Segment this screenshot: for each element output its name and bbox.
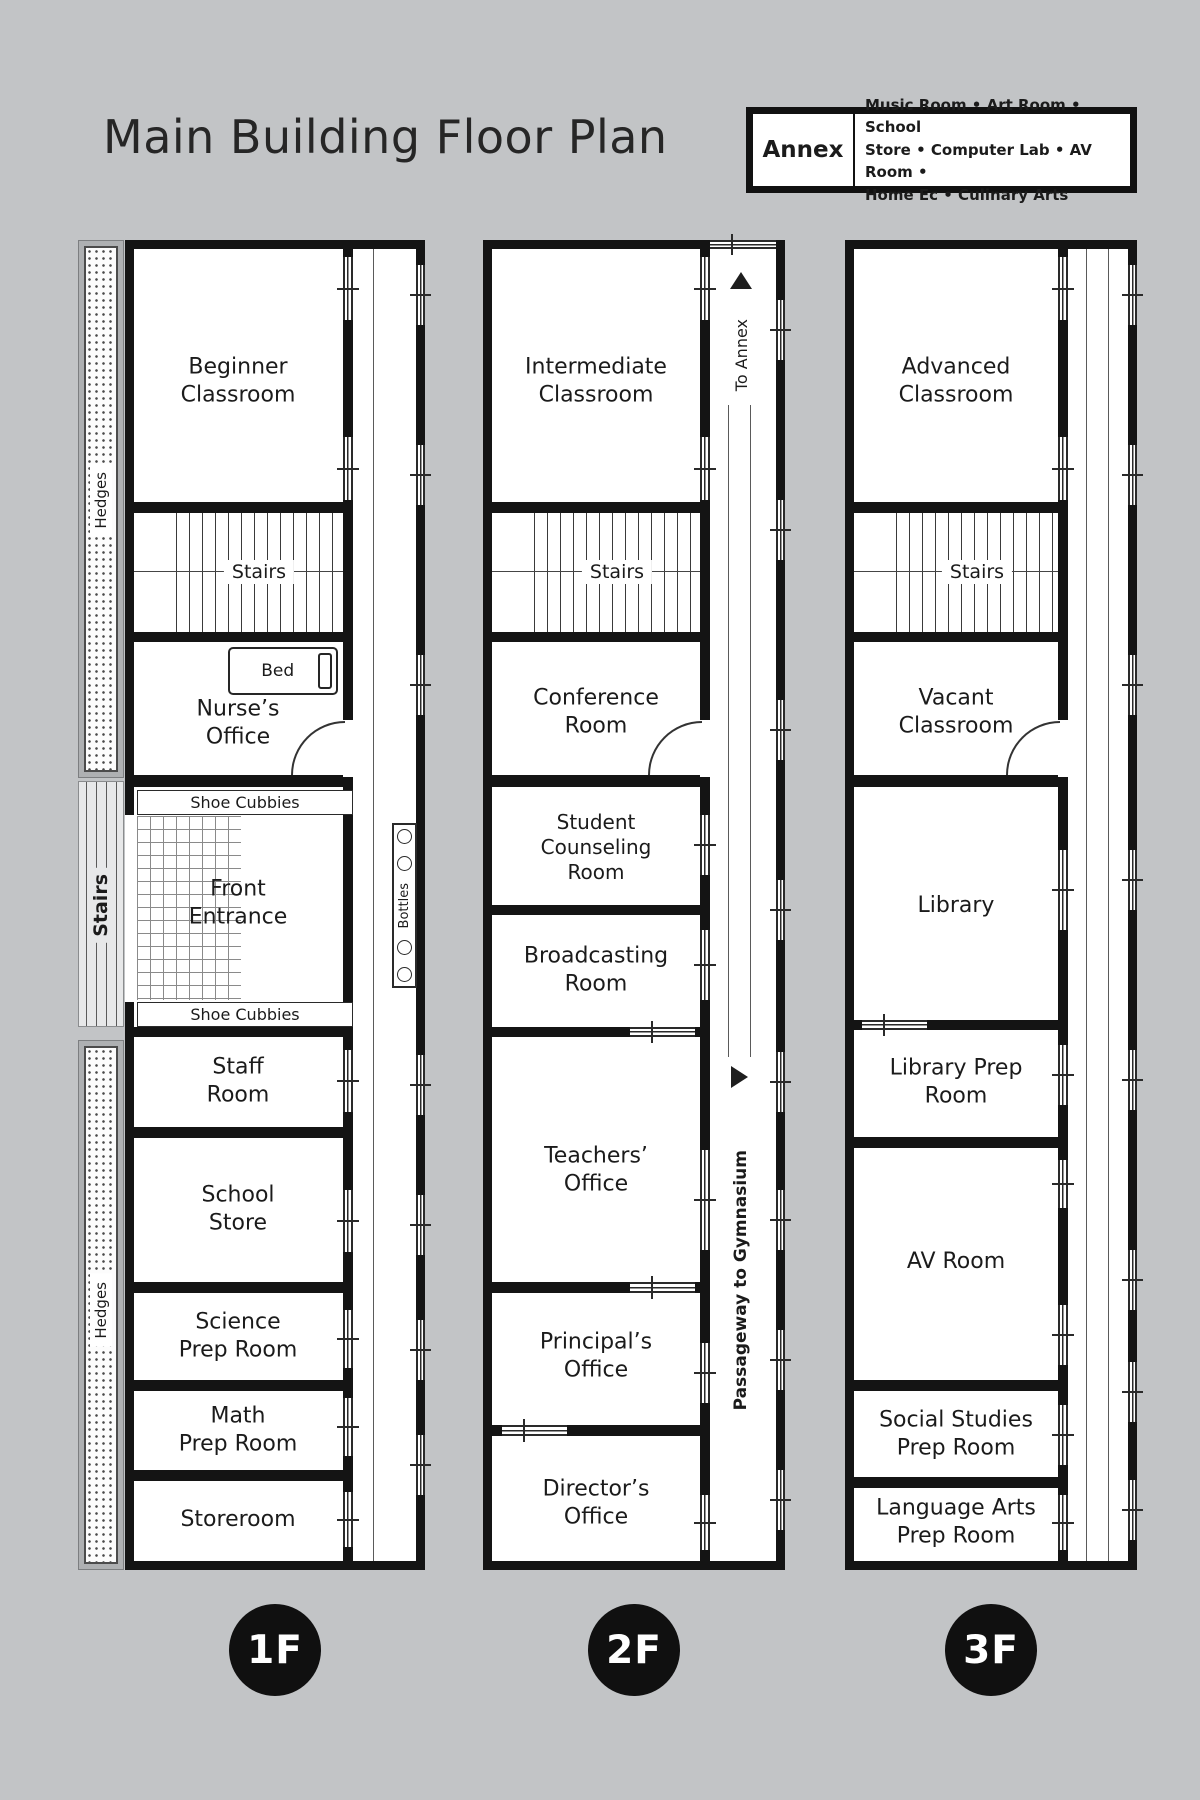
window-marker: [700, 257, 710, 320]
wall: [134, 1027, 343, 1037]
window-marker: [416, 1435, 425, 1495]
wall: [134, 1470, 343, 1481]
room-label-intermediate-classroom: Intermediate Classroom: [525, 353, 667, 408]
wall: [134, 1282, 343, 1293]
wall: [134, 1127, 343, 1138]
corridor-line: [1086, 249, 1087, 1561]
window-marker: [343, 1310, 353, 1368]
room-label-library-prep: Library Prep Room: [890, 1054, 1023, 1109]
bottle-icon: [397, 829, 412, 844]
room-label-vacant-classroom: Vacant Classroom: [899, 684, 1014, 739]
window-marker: [776, 300, 785, 360]
window-marker: [343, 1190, 353, 1252]
wall: [854, 1380, 1058, 1391]
window-marker: [776, 1190, 785, 1250]
floor-badge-2f: 2F: [588, 1604, 680, 1696]
room-label-library: Library: [918, 892, 995, 920]
room-label-school-store: School Store: [201, 1181, 274, 1236]
wall: [854, 775, 1058, 787]
corridor-line: [373, 249, 374, 1561]
hedges-label: Hedges: [78, 1265, 124, 1355]
passage-opening: [710, 240, 776, 249]
wall: [483, 1561, 785, 1570]
room-label-front-entrance: Front Entrance: [189, 875, 288, 930]
window-marker: [416, 1195, 425, 1255]
window-marker: [343, 1398, 353, 1456]
window-marker: [1058, 1305, 1068, 1365]
room-label-teachers-office: Teachers’ Office: [544, 1142, 648, 1197]
shoe-cubbies: Shoe Cubbies: [137, 790, 353, 815]
window-marker: [1128, 1362, 1137, 1422]
annex-legend-line: Store • Computer Lab • AV Room •: [865, 139, 1126, 184]
window-marker: [1058, 1405, 1068, 1465]
door-marker: [776, 1052, 785, 1112]
window-marker: [776, 500, 785, 560]
window-marker: [776, 1470, 785, 1530]
bottle-icon: [397, 856, 412, 871]
window-marker: [416, 655, 425, 715]
window-marker: [700, 437, 710, 500]
to-annex-label: To Annex: [722, 300, 760, 410]
room-label-student-counseling: Student Counseling Room: [541, 810, 652, 886]
window-marker: [700, 1150, 710, 1250]
room-label-principals-office: Principal’s Office: [540, 1328, 652, 1383]
window-marker: [416, 265, 425, 325]
room-label-directors-office: Director’s Office: [543, 1475, 650, 1530]
exterior-stairs-label: Stairs: [78, 865, 124, 945]
window-marker: [416, 1055, 425, 1115]
window-marker: [700, 815, 710, 875]
window-marker: [1128, 1050, 1137, 1110]
shoe-cubbies: Shoe Cubbies: [137, 1002, 353, 1027]
door-marker: [502, 1425, 567, 1436]
window-marker: [1128, 1250, 1137, 1310]
hedges-label: Hedges: [78, 455, 124, 545]
door-marker: [630, 1027, 695, 1037]
window-marker: [700, 930, 710, 1000]
bottles-rack: Bottles: [392, 823, 417, 988]
wall: [483, 240, 710, 249]
window-marker: [343, 437, 353, 500]
room-label-social-studies-prep: Social Studies Prep Room: [879, 1406, 1033, 1461]
annex-legend-line: Home Ec • Culinary Arts: [865, 184, 1126, 207]
annex-legend-list: Music Room • Art Room • School Store • C…: [855, 114, 1130, 186]
floor-plan-canvas: Main Building Floor Plan Annex Music Roo…: [0, 0, 1200, 1800]
corridor-line: [728, 405, 729, 1057]
bed: Bed: [228, 647, 338, 695]
wall: [483, 240, 492, 1570]
room-label-advanced-classroom: Advanced Classroom: [899, 353, 1014, 408]
wall: [845, 1561, 1137, 1570]
window-marker: [1058, 257, 1068, 320]
room-label-language-arts-prep: Language Arts Prep Room: [876, 1494, 1036, 1549]
window-marker: [1128, 1480, 1137, 1540]
bottles-label: Bottles: [397, 883, 412, 928]
arrow-up-icon: [730, 272, 752, 289]
window-marker: [1058, 1160, 1068, 1208]
bottle-icon: [397, 940, 412, 955]
wall: [125, 1561, 425, 1570]
window-marker: [776, 1330, 785, 1390]
door-marker: [630, 1282, 695, 1293]
annex-legend: Annex Music Room • Art Room • School Sto…: [746, 107, 1137, 193]
window-marker: [1058, 1045, 1068, 1105]
door-marker: [862, 1020, 927, 1030]
room-label-broadcasting-room: Broadcasting Room: [524, 942, 668, 997]
wall: [492, 775, 700, 787]
wall: [125, 1002, 134, 1570]
room-label-conference-room: Conference Room: [533, 684, 659, 739]
wall: [854, 1477, 1058, 1488]
bed-pillow: [318, 653, 332, 689]
corridor-line: [750, 405, 751, 1057]
room-label-av-room: AV Room: [907, 1248, 1005, 1276]
bed-label: Bed: [261, 661, 294, 681]
wall: [854, 1137, 1058, 1148]
window-marker: [1058, 437, 1068, 500]
passageway-label: Passageway to Gymnasium: [720, 1095, 762, 1465]
wall: [134, 632, 343, 642]
wall: [845, 240, 854, 1570]
window-marker: [1128, 445, 1137, 505]
room-label-beginner-classroom: Beginner Classroom: [181, 353, 296, 408]
annex-legend-label: Annex: [753, 114, 855, 186]
bottle-icon: [397, 967, 412, 982]
wall: [125, 240, 134, 815]
window-marker: [1128, 655, 1137, 715]
wall: [492, 632, 700, 642]
window-marker: [700, 1495, 710, 1550]
window-marker: [776, 700, 785, 760]
window-marker: [343, 1492, 353, 1547]
wall: [134, 502, 343, 513]
wall: [854, 632, 1058, 642]
room-label-math-prep: Math Prep Room: [179, 1402, 298, 1457]
corridor-line: [1108, 249, 1109, 1561]
wall: [134, 1380, 343, 1391]
window-marker: [1058, 1495, 1068, 1550]
floor-badge-3f: 3F: [945, 1604, 1037, 1696]
annex-legend-line: Music Room • Art Room • School: [865, 94, 1126, 139]
window-marker: [416, 445, 425, 505]
window-marker: [776, 880, 785, 940]
wall: [125, 240, 425, 249]
window-marker: [416, 1320, 425, 1380]
room-label-nurses-office: Nurse’s Office: [197, 695, 280, 750]
room-label-storeroom: Storeroom: [180, 1506, 295, 1534]
room-label-stairs: Stairs: [224, 560, 294, 584]
window-marker: [1128, 850, 1137, 910]
floor-badge-1f: 1F: [229, 1604, 321, 1696]
window-marker: [343, 257, 353, 320]
wall: [492, 502, 700, 513]
room-label-science-prep: Science Prep Room: [179, 1308, 298, 1363]
window-marker: [1128, 265, 1137, 325]
wall: [492, 905, 700, 915]
room-label-staff-room: Staff Room: [207, 1053, 270, 1108]
arrow-right-icon: [731, 1066, 748, 1088]
wall: [845, 240, 1137, 249]
wall: [854, 502, 1058, 513]
page-title: Main Building Floor Plan: [103, 110, 668, 164]
window-marker: [700, 1343, 710, 1403]
window-marker: [343, 1050, 353, 1112]
room-label-stairs: Stairs: [582, 560, 652, 584]
wall: [134, 775, 343, 787]
room-label-stairs: Stairs: [942, 560, 1012, 584]
window-marker: [1058, 850, 1068, 930]
